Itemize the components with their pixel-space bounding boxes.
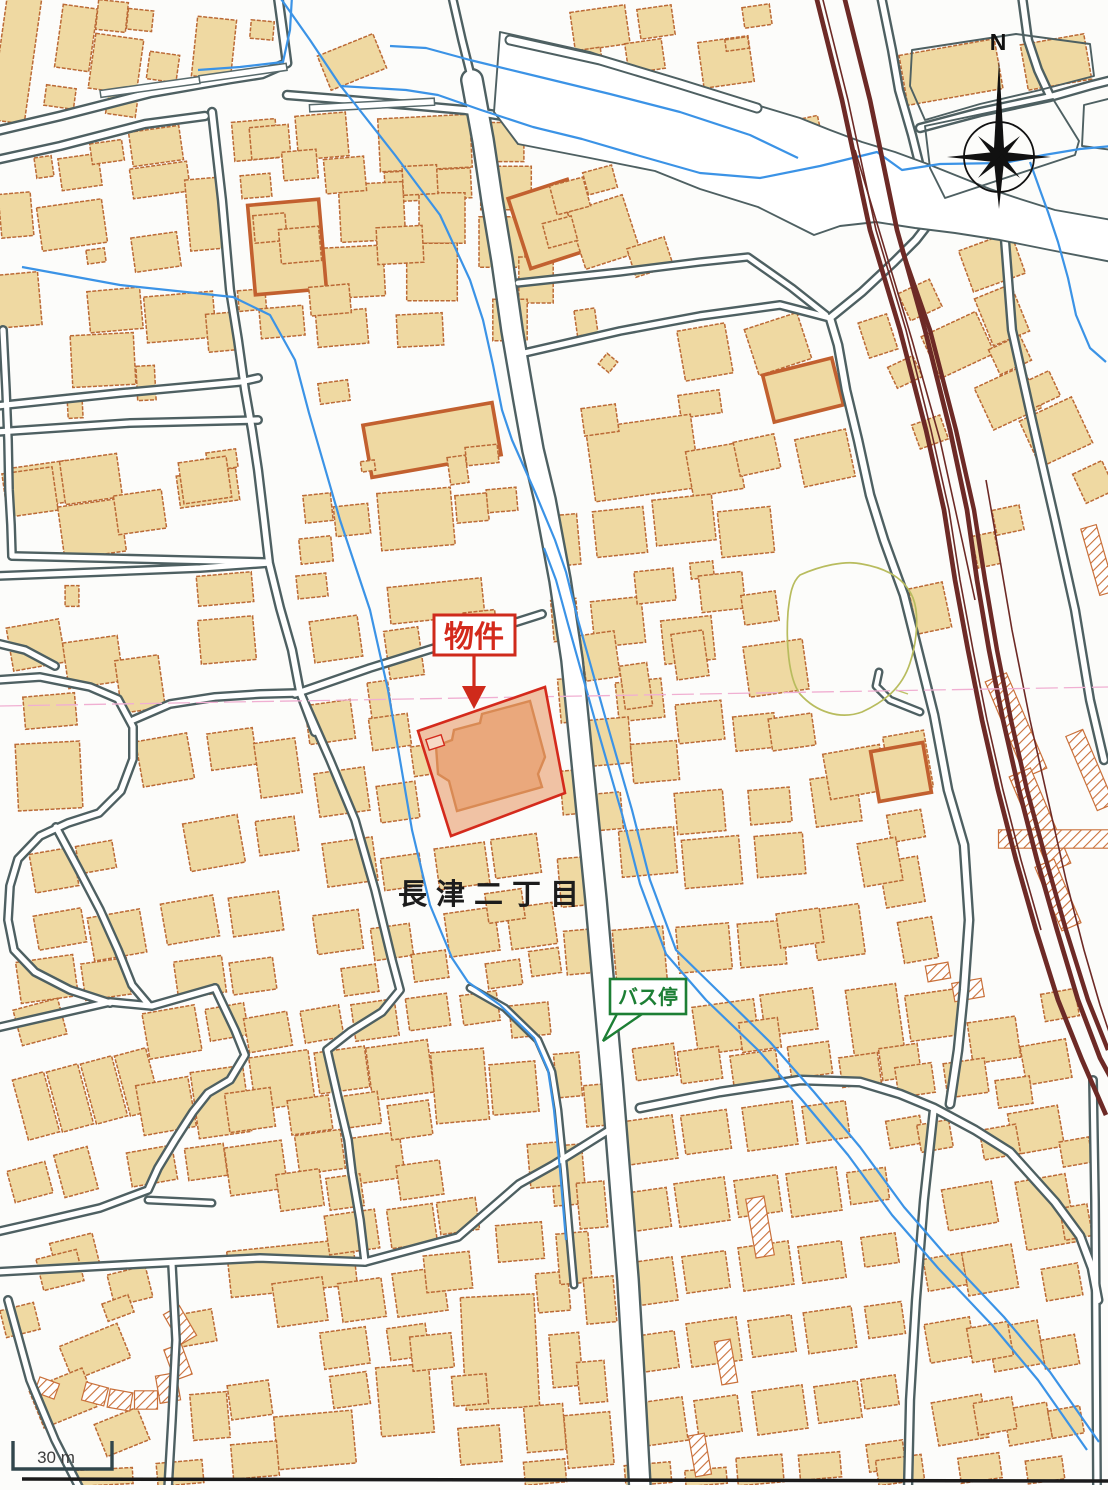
svg-text:30 m: 30 m xyxy=(37,1448,75,1467)
svg-text:N: N xyxy=(990,29,1007,55)
svg-text:バス停: バス停 xyxy=(618,985,678,1009)
svg-text:長津二丁目: 長津二丁目 xyxy=(398,878,588,911)
svg-text:物件: 物件 xyxy=(444,621,504,654)
